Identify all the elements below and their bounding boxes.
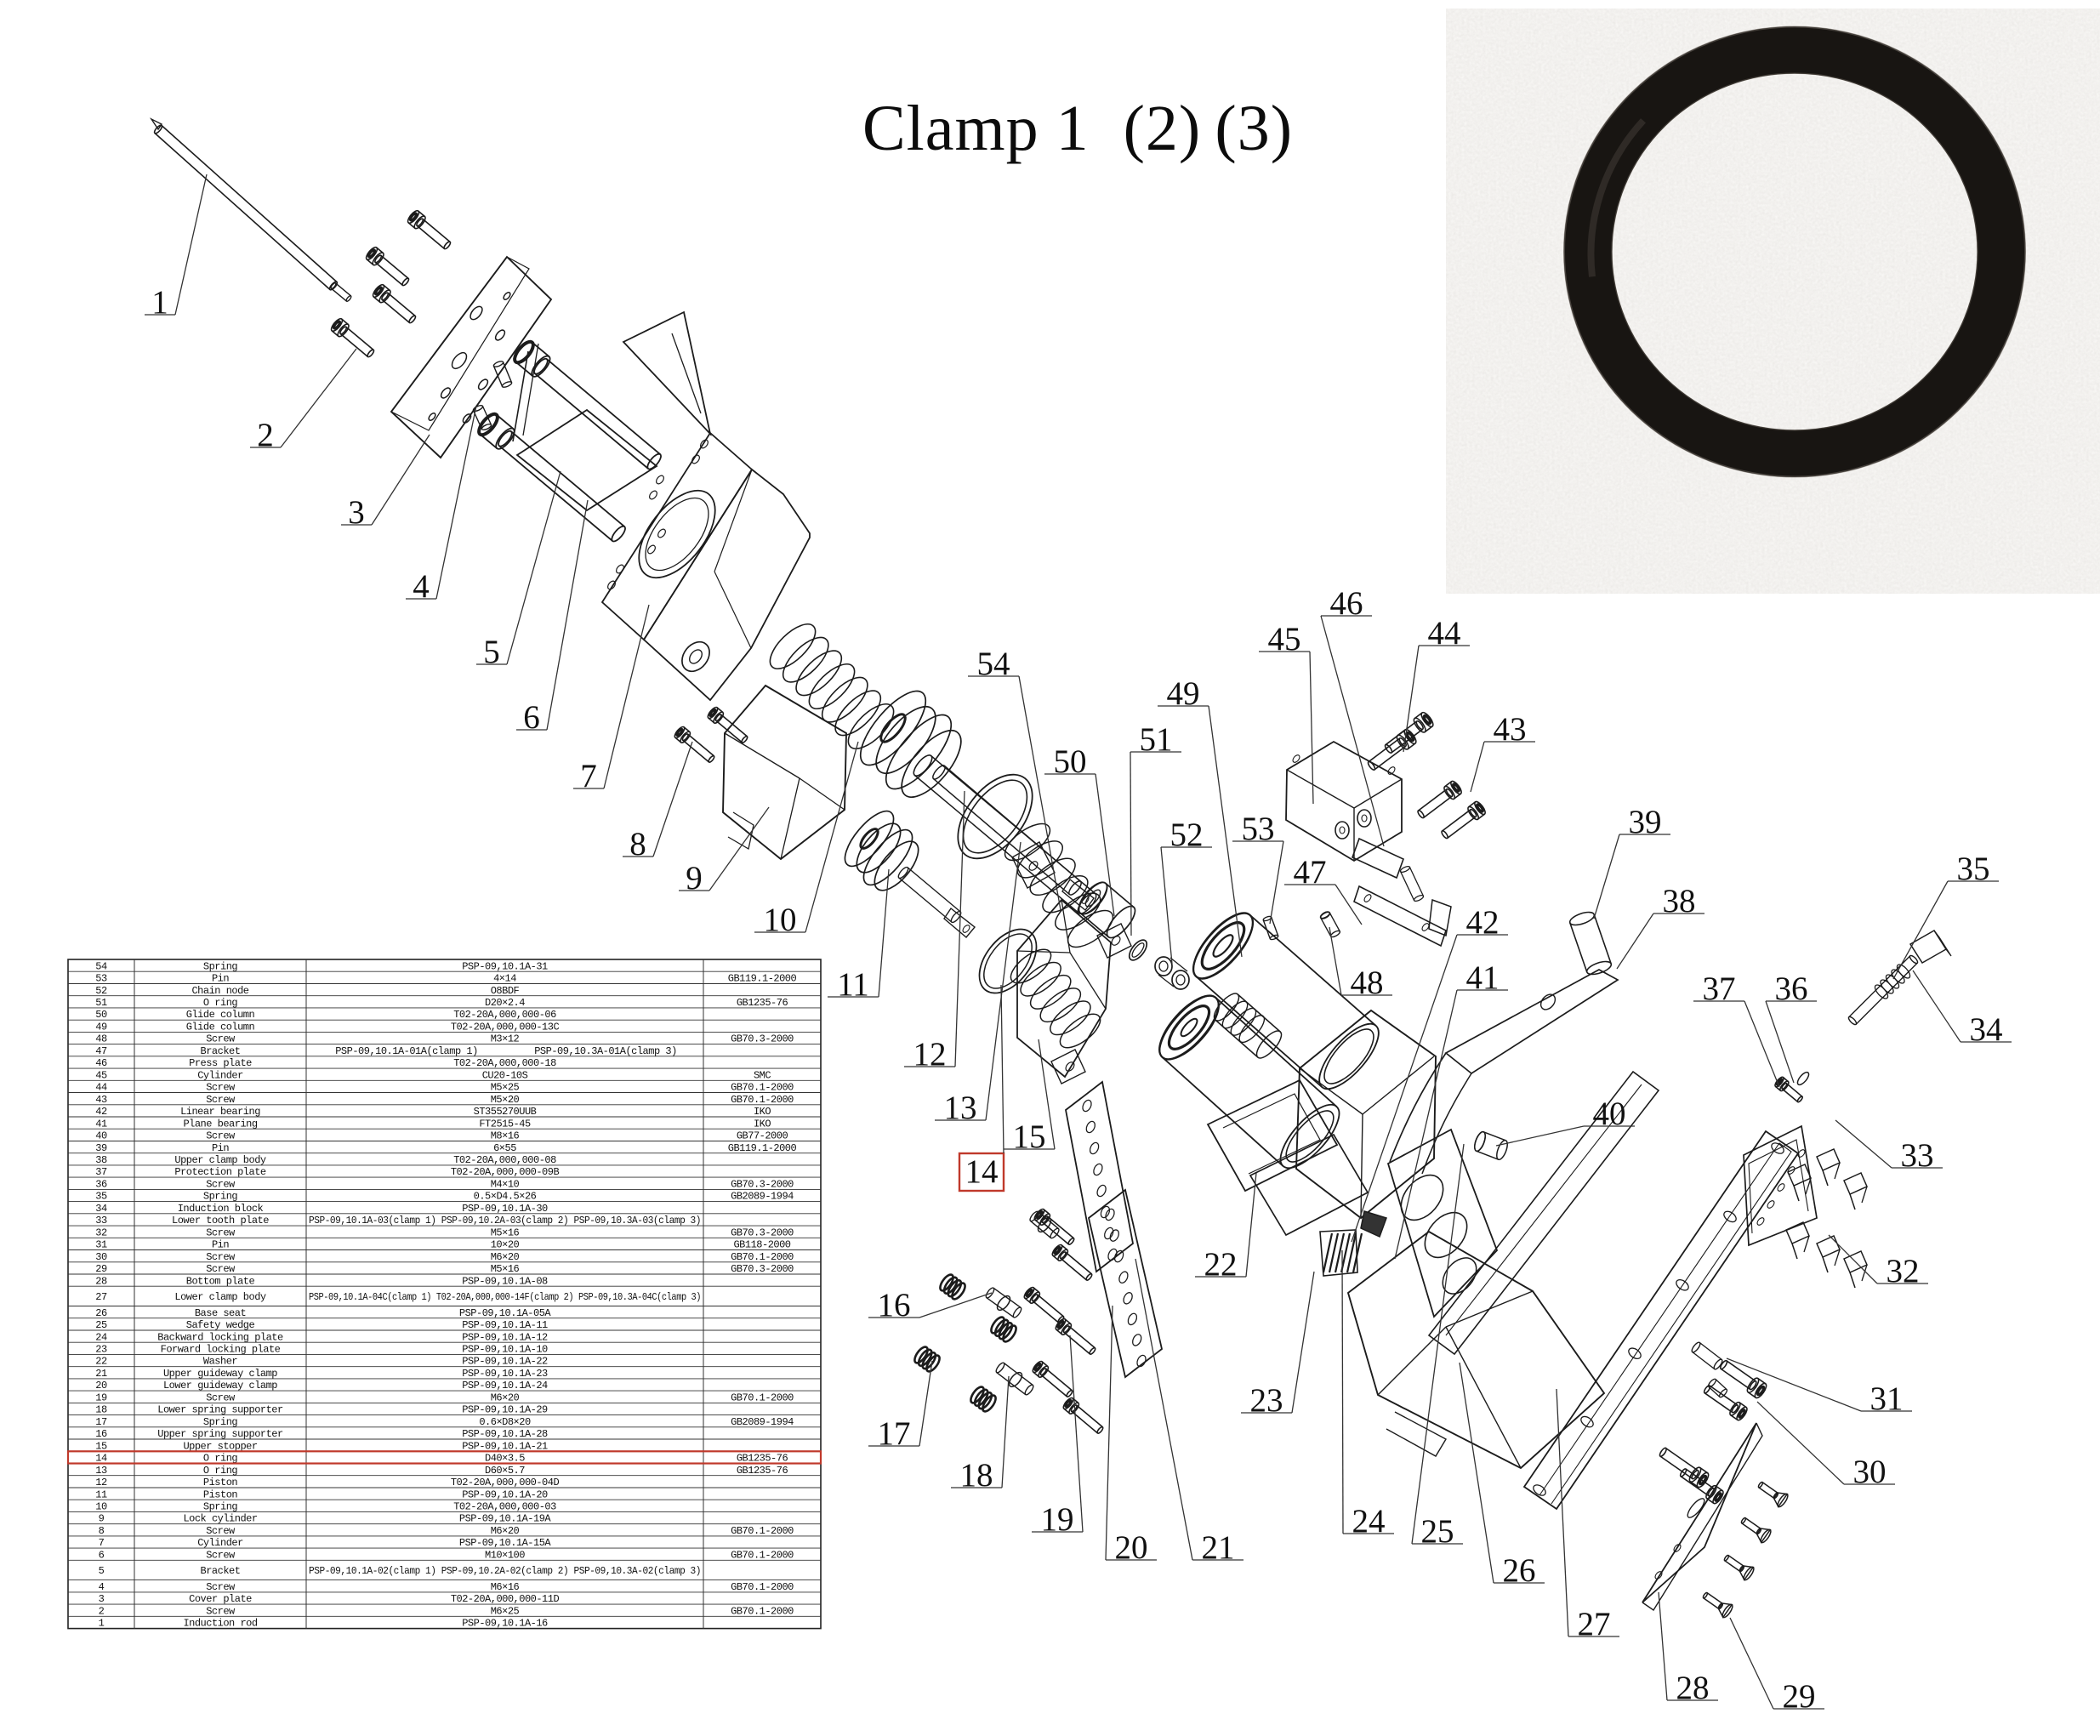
svg-text:6×55: 6×55 [493, 1142, 516, 1154]
svg-text:Spring: Spring [203, 1416, 238, 1428]
svg-text:Cylinder: Cylinder [197, 1069, 243, 1081]
svg-text:9: 9 [99, 1513, 105, 1525]
svg-text:FT2515-45: FT2515-45 [479, 1118, 531, 1130]
svg-text:PSP-09,10.1A-24: PSP-09,10.1A-24 [462, 1380, 548, 1392]
svg-text:Screw: Screw [206, 1130, 236, 1142]
svg-text:53: 53 [95, 973, 107, 985]
svg-text:O ring: O ring [203, 997, 238, 1009]
svg-text:Induction block: Induction block [178, 1203, 264, 1215]
svg-text:46: 46 [95, 1057, 107, 1069]
svg-text:Glide column: Glide column [186, 1009, 255, 1021]
svg-text:T02-20A,000,000-03: T02-20A,000,000-03 [453, 1501, 556, 1513]
svg-text:30: 30 [95, 1251, 107, 1263]
svg-text:GB2089-1994: GB2089-1994 [731, 1416, 794, 1428]
svg-text:37: 37 [95, 1166, 107, 1178]
svg-text:Screw: Screw [206, 1263, 236, 1275]
svg-text:Upper clamp body: Upper clamp body [174, 1154, 266, 1166]
svg-text:M6×16: M6×16 [491, 1581, 520, 1593]
svg-text:PSP-09,10.1A-31: PSP-09,10.1A-31 [462, 960, 548, 972]
svg-text:PSP-09,10.1A-11: PSP-09,10.1A-11 [462, 1319, 548, 1331]
svg-text:Press plate: Press plate [189, 1057, 252, 1069]
svg-text:GB70.1-2000: GB70.1-2000 [731, 1549, 794, 1561]
svg-text:27: 27 [95, 1291, 107, 1303]
svg-text:23: 23 [95, 1344, 107, 1356]
svg-text:6: 6 [99, 1549, 105, 1561]
svg-text:T02-20A,000,000-08: T02-20A,000,000-08 [453, 1154, 556, 1166]
svg-text:28: 28 [95, 1275, 107, 1287]
svg-text:GB2089-1994: GB2089-1994 [731, 1191, 794, 1203]
svg-text:GB70.3-2000: GB70.3-2000 [731, 1179, 794, 1191]
svg-text:49: 49 [95, 1022, 107, 1033]
svg-text:GB70.3-2000: GB70.3-2000 [731, 1033, 794, 1045]
svg-text:0.6×D8×20: 0.6×D8×20 [479, 1416, 531, 1428]
svg-text:T02-20A,000,000-06: T02-20A,000,000-06 [453, 1009, 556, 1021]
svg-text:38: 38 [95, 1154, 107, 1166]
svg-text:PSP-09,10.1A-20: PSP-09,10.1A-20 [462, 1488, 548, 1500]
svg-text:O8BDF: O8BDF [491, 985, 520, 997]
svg-text:10: 10 [95, 1501, 107, 1513]
svg-text:PSP-09,10.1A-23: PSP-09,10.1A-23 [462, 1368, 548, 1380]
svg-text:13: 13 [95, 1465, 107, 1477]
svg-text:22: 22 [95, 1356, 107, 1368]
svg-text:M8×16: M8×16 [491, 1130, 520, 1142]
svg-text:18: 18 [95, 1404, 107, 1416]
svg-text:GB70.1-2000: GB70.1-2000 [731, 1094, 794, 1106]
svg-text:17: 17 [95, 1416, 107, 1428]
svg-text:24: 24 [95, 1331, 107, 1343]
svg-text:Cover plate: Cover plate [189, 1593, 252, 1605]
svg-text:GB1235-76: GB1235-76 [737, 1465, 788, 1477]
svg-text:GB70.1-2000: GB70.1-2000 [731, 1605, 794, 1617]
svg-text:Pin: Pin [212, 1142, 229, 1154]
svg-text:5: 5 [99, 1565, 105, 1577]
svg-text:PSP-09,10.3A-01A(clamp 3): PSP-09,10.3A-01A(clamp 3) [534, 1045, 677, 1057]
svg-text:GB70.1-2000: GB70.1-2000 [731, 1392, 794, 1403]
svg-text:Screw: Screw [206, 1549, 236, 1561]
svg-text:T02-20A,000,000-04D: T02-20A,000,000-04D [451, 1477, 560, 1488]
svg-text:31: 31 [95, 1239, 107, 1251]
svg-text:T02-20A,000,000-09B: T02-20A,000,000-09B [451, 1166, 560, 1178]
svg-text:PSP-09,10.1A-03(clamp 1) PSP-0: PSP-09,10.1A-03(clamp 1) PSP-09,10.2A-03… [309, 1215, 701, 1227]
svg-text:Lock cylinder: Lock cylinder [183, 1513, 257, 1525]
svg-text:M5×16: M5×16 [491, 1263, 520, 1275]
svg-text:35: 35 [95, 1191, 107, 1203]
svg-text:Induction rod: Induction rod [183, 1618, 257, 1630]
svg-text:PSP-09,10.1A-16: PSP-09,10.1A-16 [462, 1618, 548, 1630]
svg-text:M5×20: M5×20 [491, 1094, 520, 1106]
svg-text:GB70.1-2000: GB70.1-2000 [731, 1082, 794, 1094]
svg-text:GB70.3-2000: GB70.3-2000 [731, 1227, 794, 1238]
svg-text:11: 11 [95, 1488, 107, 1500]
svg-text:SMC: SMC [754, 1069, 771, 1081]
svg-text:Upper guideway clamp: Upper guideway clamp [163, 1368, 277, 1380]
svg-text:Washer: Washer [203, 1356, 238, 1368]
svg-text:1: 1 [99, 1618, 105, 1630]
svg-text:GB119.1-2000: GB119.1-2000 [728, 973, 797, 985]
svg-text:50: 50 [95, 1009, 107, 1021]
svg-text:10×20: 10×20 [491, 1239, 520, 1251]
svg-text:40: 40 [95, 1130, 107, 1142]
svg-text:IKO: IKO [754, 1106, 771, 1118]
svg-text:51: 51 [95, 997, 107, 1009]
svg-text:48: 48 [95, 1033, 107, 1045]
svg-text:44: 44 [95, 1082, 107, 1094]
svg-text:39: 39 [95, 1142, 107, 1154]
svg-text:O ring: O ring [203, 1465, 238, 1477]
svg-text:PSP-09,10.1A-15A: PSP-09,10.1A-15A [459, 1537, 552, 1549]
svg-text:Spring: Spring [203, 1501, 238, 1513]
svg-text:T02-20A,000,000-13C: T02-20A,000,000-13C [451, 1022, 560, 1033]
svg-text:Protection plate: Protection plate [174, 1166, 266, 1178]
svg-text:52: 52 [95, 985, 107, 997]
svg-text:Cylinder: Cylinder [197, 1537, 243, 1549]
svg-text:PSP-09,10.1A-10: PSP-09,10.1A-10 [462, 1344, 548, 1356]
svg-text:25: 25 [95, 1319, 107, 1331]
svg-text:2: 2 [99, 1605, 105, 1617]
svg-text:GB70.1-2000: GB70.1-2000 [731, 1251, 794, 1263]
svg-text:8: 8 [99, 1525, 105, 1537]
svg-text:Piston: Piston [203, 1477, 238, 1488]
svg-text:Chain node: Chain node [191, 985, 248, 997]
svg-text:Lower spring supporter: Lower spring supporter [157, 1404, 283, 1416]
svg-text:42: 42 [95, 1106, 107, 1118]
svg-text:CU20-10S: CU20-10S [482, 1069, 528, 1081]
svg-text:M6×25: M6×25 [491, 1605, 520, 1617]
svg-text:7: 7 [99, 1537, 105, 1549]
svg-text:19: 19 [95, 1392, 107, 1403]
svg-text:M6×20: M6×20 [491, 1525, 520, 1537]
svg-text:ST355270UUB: ST355270UUB [474, 1106, 537, 1118]
svg-text:Lower guideway clamp: Lower guideway clamp [163, 1380, 277, 1392]
svg-text:Clamp 1 (2) (3): Clamp 1 (2) (3) [862, 93, 1293, 164]
svg-text:4: 4 [99, 1581, 105, 1593]
svg-text:16: 16 [95, 1428, 107, 1440]
svg-text:Upper spring supporter: Upper spring supporter [157, 1428, 283, 1440]
svg-text:PSP-09,10.1A-19A: PSP-09,10.1A-19A [459, 1513, 552, 1525]
svg-text:4×14: 4×14 [493, 973, 516, 985]
svg-text:GB70.3-2000: GB70.3-2000 [731, 1263, 794, 1275]
svg-text:M4×10: M4×10 [491, 1179, 520, 1191]
svg-text:41: 41 [95, 1118, 107, 1130]
svg-text:32: 32 [95, 1227, 107, 1238]
svg-text:Bottom plate: Bottom plate [186, 1275, 255, 1287]
svg-text:34: 34 [95, 1203, 107, 1215]
svg-text:Safety wedge: Safety wedge [186, 1319, 255, 1331]
svg-text:Screw: Screw [206, 1033, 236, 1045]
svg-text:T02-20A,000,000-18: T02-20A,000,000-18 [453, 1057, 556, 1069]
svg-text:26: 26 [95, 1307, 107, 1319]
svg-text:PSP-09,10.1A-05A: PSP-09,10.1A-05A [459, 1307, 552, 1319]
svg-text:D60×5.7: D60×5.7 [485, 1465, 525, 1477]
svg-text:Screw: Screw [206, 1605, 236, 1617]
svg-text:47: 47 [95, 1045, 107, 1057]
svg-text:T02-20A,000,000-11D: T02-20A,000,000-11D [451, 1593, 560, 1605]
svg-text:3: 3 [99, 1593, 105, 1605]
svg-text:Screw: Screw [206, 1094, 236, 1106]
svg-text:Spring: Spring [203, 960, 238, 972]
svg-text:43: 43 [95, 1094, 107, 1106]
svg-text:Backward locking plate: Backward locking plate [157, 1331, 283, 1343]
svg-text:29: 29 [95, 1263, 107, 1275]
svg-text:Bracket: Bracket [201, 1565, 241, 1577]
svg-text:33: 33 [95, 1215, 107, 1227]
svg-text:Base seat: Base seat [195, 1307, 246, 1319]
svg-text:Piston: Piston [203, 1488, 238, 1500]
svg-text:M6×20: M6×20 [491, 1251, 520, 1263]
svg-text:Bracket: Bracket [201, 1045, 241, 1057]
svg-text:Lower tooth plate: Lower tooth plate [172, 1215, 269, 1227]
svg-text:20: 20 [95, 1380, 107, 1392]
svg-text:54: 54 [95, 960, 107, 972]
svg-text:M3×12: M3×12 [491, 1033, 520, 1045]
svg-text:21: 21 [95, 1368, 107, 1380]
svg-text:Screw: Screw [206, 1525, 236, 1537]
svg-text:12: 12 [95, 1477, 107, 1488]
svg-text:14: 14 [965, 1153, 999, 1190]
svg-text:36: 36 [95, 1179, 107, 1191]
svg-text:GB77-2000: GB77-2000 [737, 1130, 788, 1142]
svg-text:Plane bearing: Plane bearing [183, 1118, 257, 1130]
svg-text:M5×25: M5×25 [491, 1082, 520, 1094]
svg-text:PSP-09,10.1A-04C(clamp 1) T02-: PSP-09,10.1A-04C(clamp 1) T02-20A,000,00… [309, 1291, 701, 1303]
svg-text:Spring: Spring [203, 1191, 238, 1203]
svg-text:PSP-09,10.1A-12: PSP-09,10.1A-12 [462, 1331, 548, 1343]
svg-text:GB70.1-2000: GB70.1-2000 [731, 1525, 794, 1537]
svg-text:IKO: IKO [754, 1118, 771, 1130]
svg-text:Forward locking plate: Forward locking plate [161, 1344, 281, 1356]
svg-text:PSP-09,10.1A-02(clamp 1) PSP-0: PSP-09,10.1A-02(clamp 1) PSP-09,10.2A-02… [309, 1565, 701, 1577]
svg-text:0.5×D4.5×26: 0.5×D4.5×26 [474, 1191, 537, 1203]
svg-text:D20×2.4: D20×2.4 [485, 997, 525, 1009]
svg-text:M6×20: M6×20 [491, 1392, 520, 1403]
svg-text:GB119.1-2000: GB119.1-2000 [728, 1142, 797, 1154]
svg-text:PSP-09,10.1A-22: PSP-09,10.1A-22 [462, 1356, 548, 1368]
svg-text:PSP-09,10.1A-28: PSP-09,10.1A-28 [462, 1428, 548, 1440]
svg-text:Lower clamp body: Lower clamp body [174, 1291, 266, 1303]
svg-text:M5×16: M5×16 [491, 1227, 520, 1238]
svg-text:Screw: Screw [206, 1082, 236, 1094]
svg-text:GB118-2000: GB118-2000 [733, 1239, 790, 1251]
svg-text:GB1235-76: GB1235-76 [737, 997, 788, 1009]
svg-text:Screw: Screw [206, 1392, 236, 1403]
svg-text:Pin: Pin [212, 973, 229, 985]
svg-text:PSP-09,10.1A-08: PSP-09,10.1A-08 [462, 1275, 548, 1287]
svg-text:Glide column: Glide column [186, 1022, 255, 1033]
svg-text:45: 45 [95, 1069, 107, 1081]
svg-text:Screw: Screw [206, 1227, 236, 1238]
svg-text:Screw: Screw [206, 1179, 236, 1191]
svg-text:PSP-09,10.1A-01A(clamp 1): PSP-09,10.1A-01A(clamp 1) [335, 1045, 478, 1057]
svg-text:PSP-09,10.1A-30: PSP-09,10.1A-30 [462, 1203, 548, 1215]
svg-text:PSP-09,10.1A-29: PSP-09,10.1A-29 [462, 1404, 548, 1416]
svg-text:Screw: Screw [206, 1581, 236, 1593]
svg-text:M10×100: M10×100 [485, 1549, 525, 1561]
svg-text:Pin: Pin [212, 1239, 229, 1251]
svg-text:Screw: Screw [206, 1251, 236, 1263]
svg-text:GB70.1-2000: GB70.1-2000 [731, 1581, 794, 1593]
svg-text:Linear bearing: Linear bearing [180, 1106, 260, 1118]
